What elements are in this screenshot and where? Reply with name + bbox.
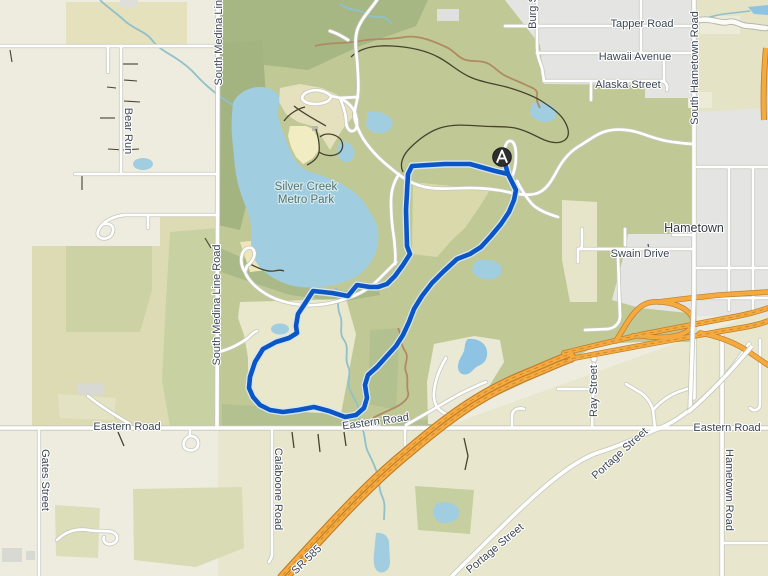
svg-text:Ray Street: Ray Street [588,365,600,417]
svg-text:Silver Creek: Silver Creek [275,181,338,193]
svg-text:Hametown Road: Hametown Road [723,449,735,531]
svg-text:Burg Street: Burg Street [527,0,539,29]
svg-text:Alaska Street: Alaska Street [595,79,660,91]
svg-text:Metro Park: Metro Park [278,194,334,206]
svg-text:South Hametown Road: South Hametown Road [689,11,701,125]
svg-text:Gates Street: Gates Street [39,449,51,511]
svg-text:Eastern Road: Eastern Road [693,422,760,434]
svg-text:Tapper Road: Tapper Road [611,18,674,30]
svg-text:Hawaii Avenue: Hawaii Avenue [599,51,672,63]
svg-text:Calaboone Road: Calaboone Road [272,448,284,531]
svg-text:Eastern Road: Eastern Road [93,421,160,433]
svg-text:South Medina Line Road: South Medina Line Road [211,244,223,365]
svg-text:Bear Run: Bear Run [122,108,134,154]
svg-text:Swain Drive: Swain Drive [611,248,670,260]
svg-text:South Medina Line Road: South Medina Line Road [213,0,225,86]
svg-text:Hametown: Hametown [664,221,724,235]
